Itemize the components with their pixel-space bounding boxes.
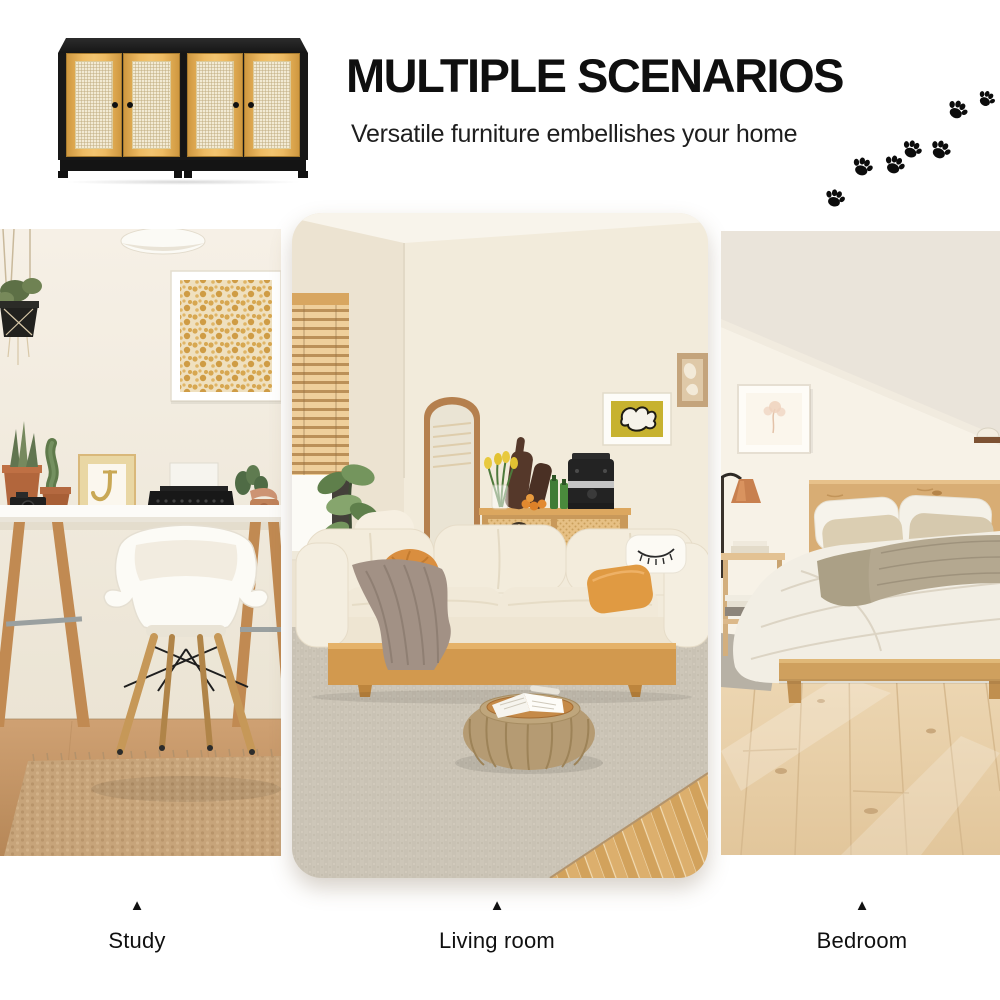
yellow-wall-art <box>603 393 671 445</box>
cabinet-shadow <box>64 179 302 185</box>
jute-rug <box>4 749 281 856</box>
cabinet-door-4 <box>244 53 300 157</box>
paw-print-icon <box>939 91 975 127</box>
cabinet-leg <box>174 171 182 178</box>
paw-print-icon <box>923 132 959 168</box>
wall-artwork <box>171 271 281 404</box>
cabinet-body <box>58 53 308 160</box>
cabinet-leg <box>298 171 308 178</box>
triangle-up-icon: ▲ <box>397 898 597 913</box>
bedroom-scene-image <box>721 231 1000 855</box>
desk <box>0 505 281 530</box>
triangle-up-icon: ▲ <box>762 898 962 913</box>
study-scene-image <box>0 229 281 856</box>
page-title: MULTIPLE SCENARIOS <box>346 52 843 99</box>
scene-label-bedroom: Bedroom <box>817 928 908 953</box>
cabinet-top <box>58 38 308 53</box>
espresso-machine <box>568 453 614 509</box>
living-room-photo <box>292 213 708 878</box>
paw-print-icon <box>845 149 879 183</box>
botanical-art <box>738 385 813 453</box>
scene-caption-living-room: ▲ Living room <box>397 898 597 954</box>
study-room-photo <box>0 229 281 856</box>
ceiling-lamp <box>121 229 205 254</box>
cabinet-leg <box>58 171 68 178</box>
scene-caption-study: ▲ Study <box>37 898 237 954</box>
paw-print-icon <box>971 83 1000 114</box>
triangle-up-icon: ▲ <box>37 898 237 913</box>
cabinet-divider <box>181 53 186 157</box>
window-blinds <box>292 293 349 561</box>
cabinet-door-1 <box>66 53 122 157</box>
page-subtitle: Versatile furniture embellishes your hom… <box>351 120 797 149</box>
paw-print-icon <box>819 182 851 214</box>
cabinet-door-3 <box>187 53 243 157</box>
bedroom-photo <box>721 231 1000 855</box>
product-banner: MULTIPLE SCENARIOS Versatile furniture e… <box>0 0 1000 1000</box>
scene-caption-bedroom: ▲ Bedroom <box>762 898 962 954</box>
cabinet-leg <box>184 171 192 178</box>
living-room-scene-image <box>292 213 708 878</box>
beige-wall-art <box>677 353 708 407</box>
cabinet-product-image <box>58 38 308 186</box>
scene-label-study: Study <box>108 928 165 953</box>
scene-label-living-room: Living room <box>439 928 555 953</box>
cabinet-door-2 <box>123 53 179 157</box>
cabinet-base <box>60 160 306 171</box>
